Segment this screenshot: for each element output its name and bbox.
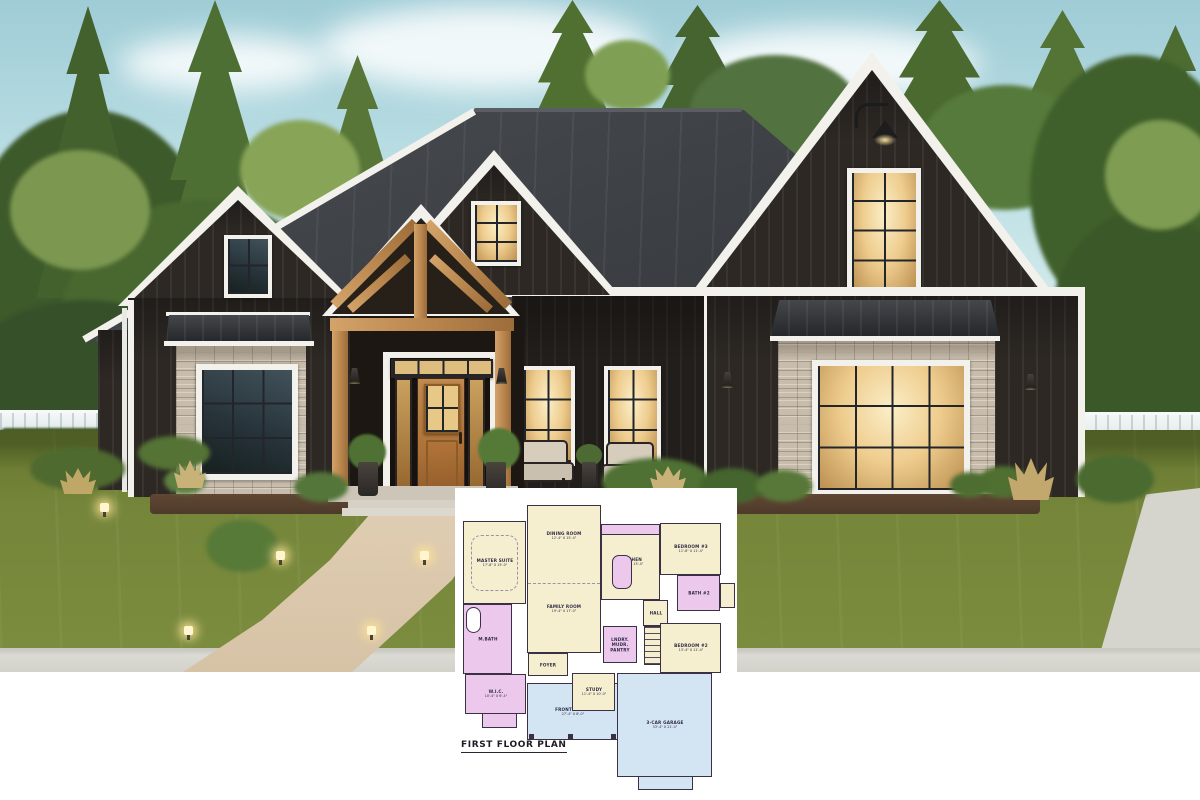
plan-room: 3-CAR GARAGE33'-4" X 21'-4" xyxy=(617,673,712,777)
plan-room-label: BATH #2 xyxy=(673,590,724,595)
plan-room-label: 3-CAR GARAGE33'-4" X 21'-4" xyxy=(607,720,722,729)
plan-room: BATH #2 xyxy=(677,575,720,611)
tree-blob xyxy=(10,150,150,270)
plan-room-label: HALL xyxy=(641,610,669,615)
plan-room-label: LNDRY. MUDR. PANTRY xyxy=(600,637,639,653)
plan-room-label: W.I.C.10'-4" X 6'-4" xyxy=(459,689,532,698)
plan-room: FAMILY ROOM19'-4" X 17'-0" xyxy=(527,583,601,635)
plan-detail xyxy=(471,535,518,591)
path-light xyxy=(420,551,429,560)
right-gable-window xyxy=(847,168,921,296)
plan-room-label: STUDY11'-4" X 10'-0" xyxy=(568,687,619,696)
path-light xyxy=(276,551,285,560)
floor-plan-inset: FRONT PORCH27'-4" X 8'-0"3-CAR GARAGE33'… xyxy=(455,488,737,800)
plan-detail xyxy=(529,734,534,739)
tree-blob xyxy=(585,40,670,110)
plan-room-label: FOYER xyxy=(525,662,572,667)
door-handle xyxy=(459,432,462,444)
gooseneck-light-glow xyxy=(874,134,896,146)
plan-room xyxy=(720,583,735,608)
door-sidelight-left xyxy=(395,378,412,491)
plan-room: FOYER xyxy=(528,653,568,676)
bush xyxy=(756,470,812,502)
plan-room xyxy=(482,713,517,728)
left-gable-window xyxy=(224,235,272,298)
plan-room: STUDY11'-4" X 10'-0" xyxy=(572,673,615,711)
plan-room: LNDRY. MUDR. PANTRY xyxy=(603,626,637,663)
plan-room: BEDROOM #213'-4" X 11'-4" xyxy=(660,623,721,673)
plan-detail xyxy=(528,583,600,584)
left-wing-corner-trim xyxy=(128,300,134,497)
plan-room-label: BEDROOM #311'-8" X 11'-4" xyxy=(654,544,727,553)
left-picture-window xyxy=(196,364,298,480)
bush xyxy=(294,472,348,502)
door-transom xyxy=(391,359,493,378)
path-light xyxy=(367,626,376,635)
front-door-glass xyxy=(424,384,460,434)
dormer-window xyxy=(471,201,521,266)
path-light xyxy=(100,503,109,512)
floor-plan-drawing: FRONT PORCH27'-4" X 8'-0"3-CAR GARAGE33'… xyxy=(462,505,724,797)
plan-room-label: M.BATH xyxy=(459,636,517,641)
plan-detail xyxy=(466,607,481,633)
bush xyxy=(138,436,210,470)
plan-room xyxy=(638,776,693,790)
path-light xyxy=(184,626,193,635)
porch-plant-pot xyxy=(582,462,596,488)
right-awning-roof xyxy=(770,300,1000,338)
plan-room xyxy=(601,524,660,535)
plan-room-label: DINING ROOM12'-4" X 15'-4" xyxy=(520,531,609,540)
screenshot-root: FRONT PORCH27'-4" X 8'-0"3-CAR GARAGE33'… xyxy=(0,0,1200,800)
plan-room-label: BEDROOM #213'-4" X 11'-4" xyxy=(654,643,727,652)
roof-ridge-cap xyxy=(474,108,742,112)
plan-room xyxy=(612,555,632,589)
right-picture-window xyxy=(812,360,970,496)
porch-post-left xyxy=(332,331,348,492)
bush xyxy=(950,472,990,498)
plan-detail xyxy=(568,734,573,739)
plan-room: W.I.C.10'-4" X 6'-4" xyxy=(465,674,526,714)
truss-king-post xyxy=(414,224,427,322)
plan-room-label: FAMILY ROOM19'-4" X 17'-0" xyxy=(518,604,609,613)
entry-beam xyxy=(330,318,514,331)
plan-detail xyxy=(611,734,616,739)
door-planter-left xyxy=(358,462,378,496)
left-awning-roof xyxy=(166,315,312,343)
plan-room: BEDROOM #311'-8" X 11'-4" xyxy=(660,523,721,575)
front-door-panel xyxy=(426,440,458,488)
bush xyxy=(206,520,278,572)
bush xyxy=(1076,455,1154,503)
floor-plan-title: FIRST FLOOR PLAN xyxy=(461,740,567,753)
